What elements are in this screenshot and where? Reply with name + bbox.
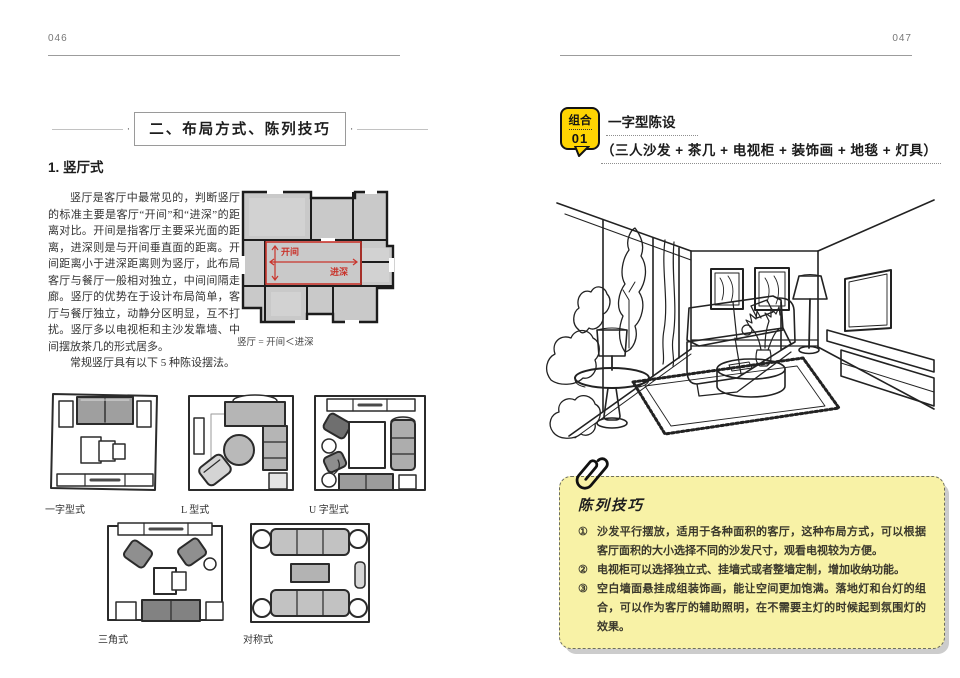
paperclip-icon [574, 455, 610, 497]
jinshen-label: 进深 [330, 266, 348, 277]
diagram-label: 三角式 [98, 631, 232, 646]
l-type-sketch [181, 388, 301, 498]
tips-title: 陈列技巧 [578, 494, 926, 515]
diagram-straight-line: 一字型式 [45, 388, 165, 516]
straight-line-sketch [45, 388, 165, 498]
tips-item-marker: ③ [578, 580, 588, 599]
combo-badge: 组合 01 [560, 107, 600, 150]
section-title: 二、布局方式、陈列技巧 [134, 112, 346, 146]
header-rule-left [48, 55, 400, 56]
intro-paragraph: 竖厅是客厅中最常见的，判断竖厅的标准主要是客厅“开间”和“进深”的距离对比。开间… [48, 190, 240, 355]
tips-item: ③ 空白墙面悬挂成组装饰画，能让空间更加饱满。落地灯和台灯的组合，可以作为客厅的… [578, 580, 926, 637]
floorplan-image: 开间 进深 [237, 188, 399, 330]
diagram-label: 一字型式 [45, 501, 165, 516]
tips-item-marker: ① [578, 523, 588, 542]
tv [845, 270, 891, 331]
page-number-right: 047 [892, 33, 912, 44]
title-dot: · [123, 123, 135, 135]
title-rule-left [52, 129, 123, 130]
combo-badge-word: 组合 [569, 112, 592, 130]
tips-item-text: 沙发平行摆放，适用于各种面积的客厅，这种布局方式，可以根据客厅面积的大小选择不同… [597, 526, 926, 557]
triangle-sketch [98, 518, 232, 628]
tips-item: ② 电视柜可以选择独立式、挂墙式或者整墙定制，增加收纳功能。 [578, 561, 926, 580]
floor-lamp [793, 275, 827, 354]
living-room-illustration [541, 180, 938, 460]
title-dot: · [346, 123, 358, 135]
combo-subtitle: （三人沙发 + 茶几 + 电视柜 + 装饰画 + 地毯 + 灯具） [601, 139, 941, 164]
tips-item-text: 空白墙面悬挂成组装饰画，能让空间更加饱满。落地灯和台灯的组合，可以作为客厅的辅助… [597, 583, 926, 633]
title-rule-right [357, 129, 428, 130]
diagram-label: L 型式 [181, 501, 301, 516]
combo-badge-number: 01 [572, 131, 588, 146]
body-text-column: 竖厅是客厅中最常见的，判断竖厅的标准主要是客厅“开间”和“进深”的距离对比。开间… [48, 190, 240, 372]
tv-cabinet [827, 330, 934, 406]
diagram-symmetric: 对称式 [243, 518, 377, 646]
speech-tail-icon [572, 146, 592, 158]
page-left: 046 · 二、布局方式、陈列技巧 · 1. 竖厅式 竖厅是客厅中最常见的，判断… [0, 0, 480, 678]
diagram-label: 对称式 [243, 631, 377, 646]
page-number-left: 046 [48, 33, 68, 44]
diagram-label: U 字型式 [309, 501, 431, 516]
diagram-triangle: 三角式 [98, 518, 232, 646]
diagram-u-type: U 字型式 [309, 386, 431, 516]
combo-title: 一字型陈设 [606, 111, 698, 136]
kaijian-label: 开间 [281, 246, 299, 257]
page-right: 047 组合 01 一字型陈设 （三人沙发 + 茶几 + 电视柜 + 装饰画 +… [480, 0, 960, 678]
trees-outside [547, 228, 646, 438]
symmetric-sketch [243, 518, 377, 628]
book-spread: 046 · 二、布局方式、陈列技巧 · 1. 竖厅式 竖厅是客厅中最常见的，判断… [0, 0, 960, 678]
tips-item-marker: ② [578, 561, 588, 580]
tips-item-text: 电视柜可以选择独立式、挂墙式或者整墙定制，增加收纳功能。 [597, 564, 905, 576]
header-rule-right [560, 55, 912, 56]
subsection-title: 1. 竖厅式 [48, 156, 104, 176]
tips-item: ① 沙发平行摆放，适用于各种面积的客厅，这种布局方式，可以根据客厅面积的大小选择… [578, 523, 926, 561]
tips-box: 陈列技巧 ① 沙发平行摆放，适用于各种面积的客厅，这种布局方式，可以根据客厅面积… [559, 476, 945, 649]
floorplan-caption: 竖厅 = 开间＜进深 [237, 334, 399, 348]
section-title-row: · 二、布局方式、陈列技巧 · [52, 112, 428, 146]
diagram-l-type: L 型式 [181, 388, 301, 516]
lead-in-sentence: 常规竖厅具有以下 5 种陈设摆法。 [48, 355, 240, 372]
floorplan-figure: 开间 进深 竖厅 = 开间＜进深 [237, 188, 399, 348]
u-type-sketch [309, 386, 431, 498]
